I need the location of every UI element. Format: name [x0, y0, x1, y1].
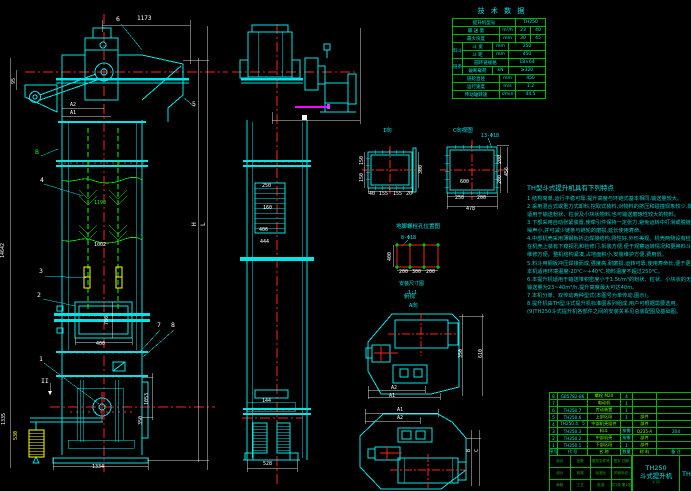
bom-material: 部件: [633, 435, 657, 442]
title-block-cell: 阶段标记: [612, 468, 633, 480]
tech-row-label: 斗 宽: [463, 43, 493, 51]
bom-seq: 3: [550, 428, 558, 435]
dim-1002: 1002: [94, 243, 106, 248]
bom-row: 7 电动机 1: [550, 400, 691, 407]
tech-row-label: 提升机型号: [453, 19, 516, 27]
tech-unit: r/min: [500, 91, 516, 99]
dim-c-478: 478: [466, 207, 475, 212]
dim-hp-350: 350: [459, 349, 464, 358]
bom-name: 电动机: [588, 400, 621, 407]
title-block-cell: 标记: [550, 456, 571, 468]
dim-i-40: 40: [369, 192, 375, 197]
dim-anchor-400: 400: [388, 252, 393, 261]
bom-row: 8 GB5782-86 螺栓 M20 4: [550, 393, 691, 400]
dim-c-250: 250: [455, 196, 464, 201]
bom-qty: 1: [621, 442, 633, 449]
anchor-bolt-plan: [393, 240, 440, 270]
bom-row: 4 TH250.4、5 中部机壳组件 部件: [550, 421, 691, 428]
tech-value: 250: [509, 43, 546, 51]
bom-remark: 204: [657, 428, 691, 435]
bom-remark: [657, 435, 691, 442]
dim-hp-a1: A1: [389, 394, 395, 399]
note-line: 6.本提升机适用于输送堆积密度小于1.5t/m³的粉状、粒状、小块状的无磨琢性、…: [527, 276, 691, 284]
bom-material: Q235-A: [633, 428, 657, 435]
tech-value: 450: [516, 75, 546, 83]
tech-table: 提升机型号TH250 输 送 量m³/h2340 最大块度mm3045 料斗 斗…: [452, 18, 546, 99]
bom-remark: [657, 442, 691, 449]
tech-unit: m/s: [500, 83, 516, 91]
bom-row: 3 TH250.3 料斗 按需 Q235-A 204: [550, 428, 691, 435]
notes-title: TH型斗式提升机具有下列特点: [527, 182, 691, 192]
dim-side-144: 144: [262, 399, 271, 404]
tech-row-label: 斗 距: [463, 51, 493, 59]
bom-row: 6 TH250.7 传动装置 1: [550, 407, 691, 414]
tech-table-title: 技 术 数 据: [452, 6, 552, 16]
dim-hp-a2: A2: [391, 386, 397, 391]
bom-qty: 1: [621, 407, 633, 414]
tech-row-value: TH250: [516, 19, 546, 27]
tech-row-label: 输 送 量: [453, 27, 500, 35]
dim-side-250: 250: [262, 184, 271, 189]
dim-i-150b: 150: [360, 173, 365, 182]
dim-c-r200a: 200: [498, 155, 503, 164]
bom-remark: [657, 407, 691, 414]
tech-value: ≥320: [509, 67, 546, 75]
tech-unit: mm: [500, 75, 516, 83]
anchor-note-1: 安装尺寸图: [399, 282, 424, 287]
dim-boot-left-height: 1335: [2, 413, 7, 425]
bom-name: 螺栓 M20: [588, 393, 621, 400]
bom-rows: 8 GB5782-86 螺栓 M20 4 7 电动机 1: [550, 393, 691, 449]
bom-seq: 5: [550, 414, 558, 421]
dim-side-160: 160: [263, 206, 272, 211]
bom-code: TH250.4、5: [558, 421, 588, 428]
tech-group-chain: 链条: [453, 59, 463, 75]
title-block-row: 标记 处数 更改文件号 签字 日期: [550, 456, 632, 468]
dim-95: 95: [12, 78, 17, 84]
balloon-6: 6: [116, 16, 120, 23]
dim-side-444: 444: [260, 240, 269, 245]
dim-side-528: 528: [263, 462, 272, 467]
drawing-product-name: 斗式提升机: [640, 472, 673, 480]
bom-material: 部件: [633, 414, 657, 421]
tech-value: 45: [531, 35, 546, 43]
tech-row-label: 链轮直径: [453, 75, 500, 83]
dim-i-20: 20: [406, 192, 412, 197]
tech-row-label: 最大块度: [453, 35, 500, 43]
title-block-cell: 更改文件号: [591, 456, 612, 468]
tech-unit: mm: [493, 43, 509, 51]
dim-i-300: 300: [419, 165, 424, 174]
bom-seq: 6: [550, 407, 558, 414]
title-block-center: TH250 斗式提升机 1:25: [633, 456, 680, 491]
note-line: 维修方便。整机结构紧凑,占地面积小,安装维护方便,费用低。: [527, 251, 691, 259]
tech-data-panel: 技 术 数 据 提升机型号TH250 输 送 量m³/h2340 最大块度mm3…: [452, 6, 552, 99]
dim-a2: A2: [70, 103, 76, 108]
dim-bp-b: B: [467, 449, 472, 452]
note-line: 3.下部采用自动张紧装置,使牵引件保持一定张力,避免运转中打滑或脱链,工作平稳可…: [527, 219, 691, 227]
tech-value: 450: [509, 51, 546, 59]
note-line: 适用于输送粉状、粒状及小块状物料,也可输送磨琢性较大的物料。: [527, 211, 691, 219]
bom-row: 5 TH250.6 上部区段 1 部件: [550, 414, 691, 421]
bom-seq: 1: [550, 442, 558, 449]
bom-qty: 1: [621, 400, 633, 407]
bom-name: 中部机壳组件: [588, 421, 621, 428]
dim-head-width: 1173: [137, 16, 151, 22]
bom-code: TH250.1: [558, 442, 588, 449]
bom-qty: 按需: [621, 428, 633, 435]
dim-i-155b: 155: [393, 192, 402, 197]
bom-qty: 4: [621, 393, 633, 400]
title-block-cell: 共1张 第1张: [612, 480, 633, 491]
tech-row-label: 圆环链规格: [463, 59, 509, 67]
bom-material: [633, 407, 657, 414]
note-line: 5.料斗用钢板冲压焊接而成,强度高,耐磨损,运转可靠,使用寿命长,便于更换。: [527, 260, 691, 268]
bom-seq: 7: [550, 400, 558, 407]
bom-seq: 4: [550, 421, 558, 428]
bom-name: 传动装置: [588, 407, 621, 414]
tech-value: 30: [516, 35, 531, 43]
tech-value: 40: [531, 27, 546, 35]
dim-bp-c: C: [475, 449, 480, 452]
title-block-cell: 标准化: [591, 468, 612, 480]
dim-side-406: 406: [259, 228, 268, 233]
title-block-cell: 校核: [571, 468, 592, 480]
bom-seq: 8: [550, 393, 558, 400]
bom-remark: [657, 400, 691, 407]
bom-code: TH250.3: [558, 428, 588, 435]
dim-anchor-300: 300: [412, 270, 421, 275]
tech-row-label: 传动轴转速: [453, 91, 500, 99]
note-line: 2.采用混合式或重力式卸料,挖取式装料,对物料的挤压和碰撞现象较少,故物料破碎率…: [527, 203, 691, 211]
drawing-model: TH250: [645, 464, 666, 472]
plan1-label-2: A向: [409, 304, 418, 310]
note-line: 7.本机分单、双传动两种型式(本图号为单传动,图示)。: [527, 292, 691, 300]
balloon-3: 3: [39, 268, 43, 275]
dim-c-600: 600: [460, 180, 469, 185]
bom-row: 2 TH250.2 中部机壳 按需 部件: [550, 435, 691, 442]
balloon-8: 8: [171, 322, 175, 329]
bom-code: [558, 400, 588, 407]
note-line: 4.中部机壳采用薄钢板折边焊接结构,刚性好,外形美观。机壳两侧设有检视门,便于观…: [527, 235, 691, 243]
tech-value: 1.2: [516, 83, 546, 91]
title-block-cell: 批准: [591, 480, 612, 491]
bom-seq: 2: [550, 435, 558, 442]
view-label-i: I向: [383, 129, 392, 135]
tech-value: 23: [516, 27, 531, 35]
bom-code: TH250.7: [558, 407, 588, 414]
dim-anchor-200b: 200: [426, 270, 435, 275]
plan1-label-1: 俯视: [404, 295, 415, 301]
detail-i-view: [362, 146, 421, 194]
dim-i-150a: 150: [360, 156, 365, 165]
drawing-number: TH250: [680, 470, 691, 478]
bom-code: TH250.2: [558, 435, 588, 442]
balloon-7: 7: [157, 322, 161, 329]
tech-row-label: 运行速度: [453, 83, 500, 91]
bom-remark: [657, 393, 691, 400]
dim-anchor-200a: 200: [399, 270, 408, 275]
note-line: 输送量为23~40m³/h,提升高度最大可达40m。: [527, 284, 691, 292]
dim-hp-610: 610: [479, 349, 484, 358]
bom-row: 1 TH250.1 下部区段 1 部件: [550, 442, 691, 449]
anchor-hole-callout: 8-Φ18: [401, 236, 416, 241]
title-block-left: 标记 处数 更改文件号 签字 日期 设计 校核 标准化 阶段标记 审核 工艺 批…: [550, 456, 633, 491]
bom-qty: 按需: [621, 435, 633, 442]
note-line: 噪声小,并可减少链条与链轮的磨损,延长使用寿命。: [527, 227, 691, 235]
tech-value: 18×64: [509, 59, 546, 67]
dim-door-height: 780: [105, 316, 110, 325]
balloon-4: 4: [40, 177, 44, 184]
tech-row-label: 破断载荷: [463, 67, 493, 75]
side-view-drawing: [232, 24, 360, 486]
hole-callout-c: 13-Φ18: [481, 134, 499, 139]
parts-list-table: 8 GB5782-86 螺栓 M20 4 7 电动机 1: [549, 392, 691, 456]
dim-bp-a1: A1: [397, 408, 403, 413]
title-block-cell: 工艺: [571, 480, 592, 491]
title-block-right: TH250: [680, 456, 691, 491]
note-line: 本机适用环境温度-20℃~+40℃,物料温度不超过250℃。: [527, 268, 691, 276]
front-view-drawing: [10, 14, 228, 472]
bom-qty: 1: [621, 414, 633, 421]
bom-material: [633, 393, 657, 400]
bom-name: 中部机壳: [588, 435, 621, 442]
bom-name: 上部区段: [588, 414, 621, 421]
boot-plan-view: [360, 409, 481, 489]
dim-c-r200b: 200: [498, 175, 503, 184]
head-plan-view: [366, 313, 484, 400]
bom-material: 部件: [633, 421, 657, 428]
bom-material: [633, 400, 657, 407]
title-block-cell: 审核: [550, 480, 571, 491]
title-block: 标记 处数 更改文件号 签字 日期 设计 校核 标准化 阶段标记 审核 工艺 批…: [549, 455, 691, 491]
bom-qty: [621, 421, 633, 428]
bom-code: TH250.6: [558, 414, 588, 421]
balloon-1: 1: [39, 356, 43, 363]
dim-bp-a2: A2: [397, 416, 403, 421]
notes-lines: 1.结构简单,运行平稳可靠,提升高度与环链式基本相同,输送量较大。2.采用混合式…: [527, 195, 691, 316]
bom-name: 料斗: [588, 428, 621, 435]
note-line: (9)TH250斗式提升机各部件之间的安装关系见总装配图及基础图。: [527, 308, 691, 316]
balloon-5: 5: [192, 101, 196, 108]
cad-canvas: 1173 A2 A1 95 14642 1190 1002 400 780 13…: [0, 0, 691, 491]
view-label-c: C向视图: [453, 129, 473, 135]
tech-unit: kN: [493, 67, 509, 75]
dim-i-155a: 155: [379, 192, 388, 197]
tech-unit: m³/h: [500, 27, 516, 35]
dim-L: L: [201, 222, 207, 226]
detail-c-view: [440, 138, 509, 209]
note-line: 8.提升机由TH型斗式提升机标准图系列组成,用户可根据需要选用。: [527, 300, 691, 308]
title-block-cell: 处数: [571, 456, 592, 468]
dim-a1: A1: [70, 111, 76, 116]
dim-c-200: 200: [477, 196, 486, 201]
marker-B: B: [35, 149, 39, 156]
dim-boot-width: 1334: [92, 465, 104, 470]
dim-weight-height: 530: [14, 431, 19, 440]
tech-value: 44.5: [516, 91, 546, 99]
balloon-2: 2: [37, 292, 41, 299]
anchor-plan-title: 地脚螺栓孔位置图: [396, 225, 440, 231]
title-block-row: 审核 工艺 批准 共1张 第1张: [550, 480, 632, 491]
dim-door-width: 400: [96, 342, 105, 347]
bom-remark: [657, 421, 691, 428]
drawing-scale: 1:25: [652, 480, 660, 484]
tech-unit: mm: [500, 35, 516, 43]
tech-unit: mm: [493, 51, 509, 59]
title-block-cell: 设计: [550, 468, 571, 480]
bom-code: GB5782-86: [558, 393, 588, 400]
feature-notes: TH型斗式提升机具有下列特点 1.结构简单,运行平稳可靠,提升高度与环链式基本相…: [527, 182, 691, 390]
title-block-row: 设计 校核 标准化 阶段标记: [550, 468, 632, 480]
marker-II: II: [41, 378, 49, 385]
bom-material: 部件: [633, 442, 657, 449]
title-block-cell: 签字 日期: [612, 456, 633, 468]
tech-group-bucket: 料斗: [453, 43, 463, 59]
bom-remark: [657, 414, 691, 421]
dim-overall-height: 14642: [1, 243, 6, 258]
dim-boot-right-height2: 350: [139, 416, 144, 425]
bom-name: 下部区段: [588, 442, 621, 449]
dim-H: H: [192, 222, 198, 226]
dim-c-456: 456: [505, 167, 510, 176]
dim-boot-right-height: 1053: [145, 393, 150, 405]
note-line: 1.结构简单,运行平稳可靠,提升高度与环链式基本相同,输送量较大。: [527, 195, 691, 203]
dim-1190: 1190: [94, 201, 106, 206]
note-line: 在机壳上装有下窥视孔和检修门,拆装方便,便于观察运转情况和更换料斗及牵引件,: [527, 243, 691, 251]
